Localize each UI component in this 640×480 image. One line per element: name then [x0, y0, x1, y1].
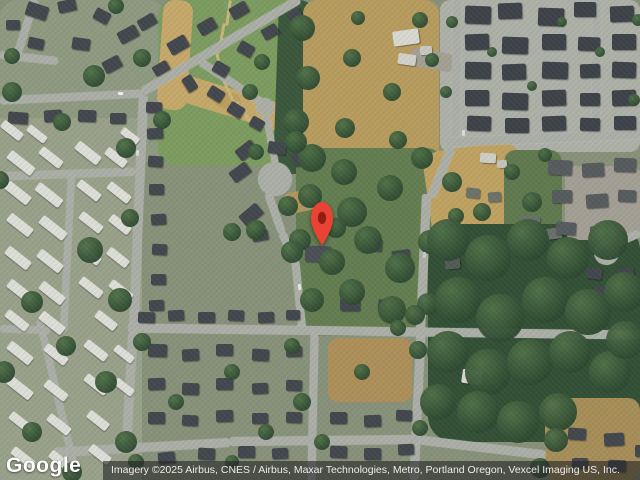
tree	[285, 131, 307, 153]
attribution-text: Imagery ©2025 Airbus, CNES / Airbus, Max…	[103, 461, 620, 480]
tree	[331, 159, 357, 185]
house	[582, 162, 605, 177]
house	[149, 300, 164, 312]
house	[466, 187, 481, 198]
house	[148, 412, 165, 424]
tree	[4, 48, 20, 64]
pin-dot	[318, 212, 326, 224]
tree	[427, 331, 469, 373]
house	[502, 37, 529, 55]
tree	[246, 220, 266, 240]
house	[252, 349, 270, 362]
house	[610, 6, 635, 23]
house	[604, 432, 625, 446]
map-viewport[interactable]: Google Imagery ©2025 Airbus, CNES / Airb…	[0, 0, 640, 480]
tree	[2, 82, 22, 102]
house	[618, 190, 636, 203]
house	[635, 445, 640, 457]
house	[148, 378, 165, 391]
tree	[522, 192, 542, 212]
house	[216, 410, 233, 423]
tree	[628, 94, 640, 106]
house	[182, 349, 200, 362]
tree	[224, 364, 240, 380]
tree	[390, 320, 406, 336]
house	[465, 6, 492, 25]
car	[462, 130, 465, 136]
house	[286, 380, 302, 392]
tree	[153, 111, 171, 129]
tree	[442, 172, 462, 192]
house	[614, 116, 636, 130]
house	[286, 412, 302, 424]
tree	[473, 203, 491, 221]
tree	[440, 86, 452, 98]
house	[216, 344, 233, 356]
house	[168, 310, 185, 322]
house	[542, 62, 569, 80]
tree	[539, 393, 577, 431]
tree	[420, 384, 456, 420]
tree	[385, 253, 415, 283]
house	[228, 310, 245, 322]
tree	[300, 288, 324, 312]
house	[465, 34, 490, 51]
house	[542, 90, 567, 107]
house	[556, 221, 577, 235]
tree	[108, 288, 132, 312]
house	[580, 64, 600, 79]
tree	[335, 118, 355, 138]
house	[252, 383, 269, 395]
house	[110, 113, 126, 124]
tree	[446, 16, 458, 28]
house	[612, 34, 636, 50]
house	[364, 415, 381, 428]
tree	[549, 331, 591, 373]
house	[396, 410, 412, 422]
tree	[22, 422, 42, 442]
house	[330, 446, 347, 459]
house	[498, 3, 523, 20]
tree	[606, 321, 640, 359]
house	[614, 158, 636, 173]
tree	[465, 235, 511, 281]
tree	[248, 144, 264, 160]
tree	[412, 12, 428, 28]
house	[502, 93, 529, 111]
tree	[284, 338, 300, 354]
tree	[378, 296, 406, 324]
tree	[339, 279, 365, 305]
tree	[547, 237, 589, 279]
house	[364, 448, 381, 460]
house	[505, 118, 529, 133]
tree	[354, 226, 382, 254]
house	[465, 90, 489, 106]
tree	[314, 434, 330, 450]
tree	[258, 424, 274, 440]
tree	[383, 83, 401, 101]
house	[502, 64, 527, 81]
house	[147, 128, 164, 140]
tree	[504, 164, 520, 180]
house	[182, 383, 199, 396]
tree	[296, 66, 320, 90]
car	[136, 150, 139, 156]
tree	[115, 431, 137, 453]
tree	[507, 219, 549, 261]
tree	[56, 336, 76, 356]
map-pin-icon[interactable]	[307, 201, 337, 246]
house	[542, 34, 566, 50]
tree	[405, 305, 425, 325]
tree	[557, 17, 567, 27]
tree	[595, 47, 605, 57]
tree	[487, 47, 497, 57]
tree	[522, 277, 568, 323]
tree	[319, 249, 345, 275]
house	[542, 116, 567, 132]
tree	[435, 277, 481, 323]
tree	[133, 49, 151, 67]
tree	[133, 333, 151, 351]
house	[148, 344, 167, 358]
tree	[411, 147, 433, 169]
tree	[465, 349, 511, 395]
tree	[254, 54, 270, 70]
tree	[116, 138, 136, 158]
house	[397, 53, 416, 66]
tree	[53, 113, 71, 131]
house	[238, 446, 255, 458]
house	[6, 20, 20, 30]
house	[568, 427, 587, 440]
house	[272, 448, 289, 460]
car	[423, 252, 426, 258]
house	[480, 153, 497, 164]
house	[258, 312, 274, 324]
tree	[527, 81, 537, 91]
tree	[497, 401, 539, 443]
tree	[604, 272, 640, 312]
tree	[507, 339, 553, 385]
house	[71, 37, 90, 51]
house	[586, 193, 609, 209]
tree	[412, 420, 428, 436]
car	[118, 92, 123, 95]
house	[465, 62, 491, 79]
house	[580, 93, 600, 106]
tree	[354, 364, 370, 380]
house	[8, 111, 29, 124]
house	[612, 62, 637, 79]
house	[488, 192, 502, 203]
tree	[544, 428, 568, 452]
house	[330, 412, 347, 424]
tree	[343, 49, 361, 67]
house	[286, 310, 300, 320]
tree	[77, 237, 103, 263]
tree	[538, 148, 552, 162]
house	[138, 312, 155, 324]
house	[151, 213, 167, 225]
house	[78, 110, 96, 123]
tree	[121, 209, 139, 227]
road-bulb	[256, 98, 274, 116]
tree	[351, 11, 365, 25]
house	[267, 141, 286, 155]
attribution-bar: Imagery ©2025 Airbus, CNES / Airbus, Max…	[103, 461, 640, 480]
tree	[223, 223, 241, 241]
tree	[632, 14, 640, 26]
house	[548, 159, 573, 175]
road-bulb	[258, 162, 292, 196]
house	[152, 244, 168, 256]
tree	[293, 393, 311, 411]
house	[151, 274, 166, 285]
tree	[427, 219, 469, 261]
tree	[83, 65, 105, 87]
house	[148, 155, 164, 167]
tree	[377, 175, 403, 201]
tree	[289, 15, 315, 41]
tree	[95, 371, 117, 393]
house	[198, 448, 216, 461]
tree	[409, 341, 427, 359]
tree	[281, 241, 303, 263]
house	[198, 312, 215, 323]
tree	[242, 84, 258, 100]
tree	[21, 291, 43, 313]
patch	[328, 338, 412, 402]
house	[552, 190, 572, 203]
house	[574, 2, 596, 17]
car	[298, 284, 302, 290]
house	[182, 415, 199, 427]
tree	[389, 131, 407, 149]
house	[580, 118, 600, 132]
tree	[457, 391, 499, 433]
house	[398, 444, 414, 456]
tree	[168, 394, 184, 410]
house	[149, 184, 164, 195]
house	[252, 413, 268, 424]
tree	[425, 53, 439, 67]
tree	[476, 294, 524, 342]
tree	[588, 220, 628, 260]
house	[467, 116, 492, 132]
google-logo[interactable]: Google	[6, 454, 81, 478]
house	[585, 267, 602, 280]
tree	[278, 196, 298, 216]
